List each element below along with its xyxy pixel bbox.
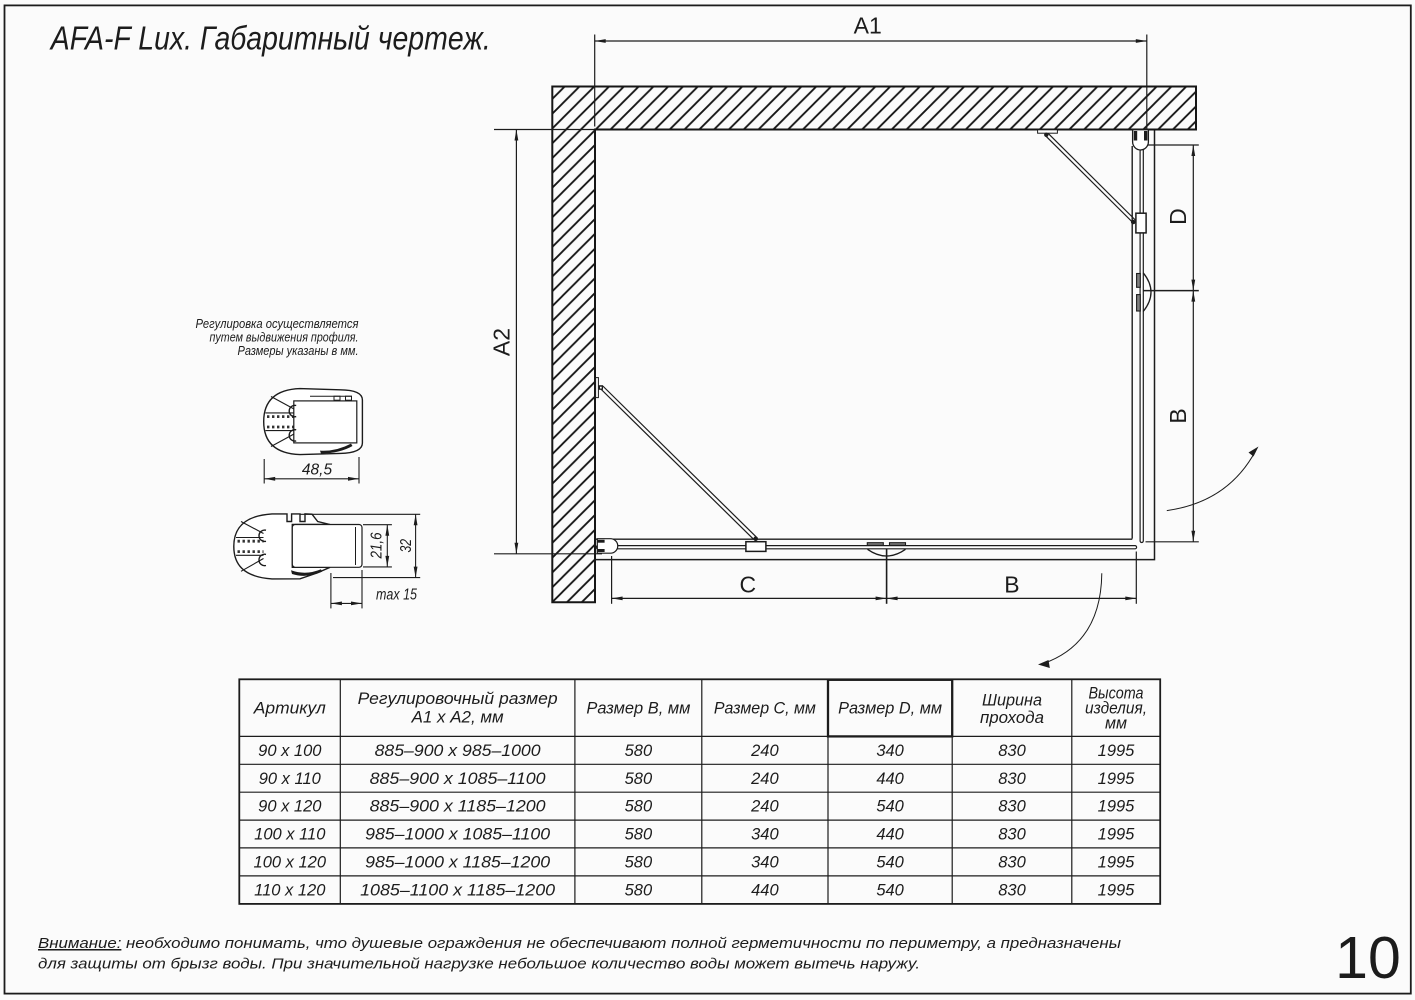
svg-text:Регулировочный размер: Регулировочный размер (358, 690, 558, 708)
svg-text:для защиты от брызг воды. При: для защиты от брызг воды. При значительн… (38, 956, 920, 973)
svg-text:340: 340 (751, 826, 779, 844)
svg-text:90 х 120: 90 х 120 (258, 798, 322, 816)
svg-text:C: C (739, 572, 756, 598)
svg-text:885–900 х 1185–1200: 885–900 х 1185–1200 (370, 798, 547, 816)
svg-text:580: 580 (625, 770, 653, 788)
svg-text:540: 540 (876, 798, 904, 816)
svg-text:830: 830 (998, 770, 1026, 788)
svg-text:1995: 1995 (1098, 826, 1136, 844)
svg-text:985–1000 х 1185–1200: 985–1000 х 1185–1200 (365, 854, 551, 872)
svg-text:10: 10 (1335, 925, 1401, 991)
svg-text:Артикул: Артикул (253, 700, 326, 718)
svg-text:100 х 110: 100 х 110 (254, 826, 326, 844)
svg-text:1995: 1995 (1098, 798, 1136, 816)
svg-text:240: 240 (750, 798, 779, 816)
svg-text:440: 440 (876, 770, 904, 788)
svg-text:AFA-F Lux. Габаритный чертеж.: AFA-F Lux. Габаритный чертеж. (49, 20, 491, 57)
svg-text:32: 32 (398, 539, 415, 553)
svg-text:830: 830 (998, 798, 1026, 816)
svg-text:985–1000 х 1085–1100: 985–1000 х 1085–1100 (365, 826, 551, 844)
svg-text:48,5: 48,5 (302, 462, 333, 479)
svg-text:1995: 1995 (1098, 881, 1136, 899)
svg-text:110 х 120: 110 х 120 (254, 881, 326, 899)
svg-text:830: 830 (998, 826, 1026, 844)
svg-text:Размер В, мм: Размер В, мм (586, 700, 690, 718)
svg-text:1085–1100 х 1185–1200: 1085–1100 х 1185–1200 (360, 881, 556, 899)
svg-text:1995: 1995 (1098, 742, 1136, 760)
svg-text:D: D (1165, 208, 1191, 225)
svg-text:прохода: прохода (980, 709, 1044, 727)
svg-text:Размер С, мм: Размер С, мм (714, 700, 816, 718)
svg-text:885–900 х 985–1000: 885–900 х 985–1000 (375, 742, 542, 760)
svg-text:340: 340 (876, 742, 904, 760)
svg-text:1995: 1995 (1098, 854, 1136, 872)
svg-text:580: 580 (625, 881, 653, 899)
svg-text:580: 580 (625, 798, 653, 816)
svg-text:90 х 110: 90 х 110 (259, 770, 322, 788)
svg-text:540: 540 (876, 854, 904, 872)
svg-text:100 х 120: 100 х 120 (254, 854, 327, 872)
svg-text:340: 340 (751, 854, 779, 872)
svg-text:580: 580 (625, 826, 653, 844)
svg-text:240: 240 (750, 770, 779, 788)
svg-text:21,6: 21,6 (369, 532, 386, 559)
svg-text:580: 580 (625, 854, 653, 872)
svg-text:A1: A1 (854, 13, 882, 39)
svg-text:Размеры указаны в мм.: Размеры указаны в мм. (238, 343, 359, 358)
svg-text:540: 540 (876, 881, 904, 899)
svg-text:Внимание: необходимо понимать,: Внимание: необходимо понимать, что душев… (38, 935, 1121, 952)
svg-text:885–900 х 1085–1100: 885–900 х 1085–1100 (370, 770, 547, 788)
svg-text:B: B (1165, 408, 1191, 423)
svg-text:мм: мм (1105, 715, 1127, 733)
svg-text:B: B (1004, 572, 1019, 598)
svg-text:A2: A2 (489, 328, 515, 356)
svg-text:1995: 1995 (1098, 770, 1136, 788)
svg-text:830: 830 (998, 742, 1026, 760)
svg-text:830: 830 (998, 881, 1026, 899)
svg-text:440: 440 (751, 881, 779, 899)
svg-text:90 х 100: 90 х 100 (258, 742, 322, 760)
svg-text:Размер D, мм: Размер D, мм (838, 700, 942, 718)
svg-text:max 15: max 15 (376, 587, 417, 604)
svg-text:830: 830 (998, 854, 1026, 872)
svg-text:580: 580 (625, 742, 653, 760)
svg-text:Ширина: Ширина (982, 692, 1042, 710)
svg-text:240: 240 (750, 742, 779, 760)
svg-text:440: 440 (876, 826, 904, 844)
svg-text:А1 х А2, мм: А1 х А2, мм (411, 709, 504, 727)
